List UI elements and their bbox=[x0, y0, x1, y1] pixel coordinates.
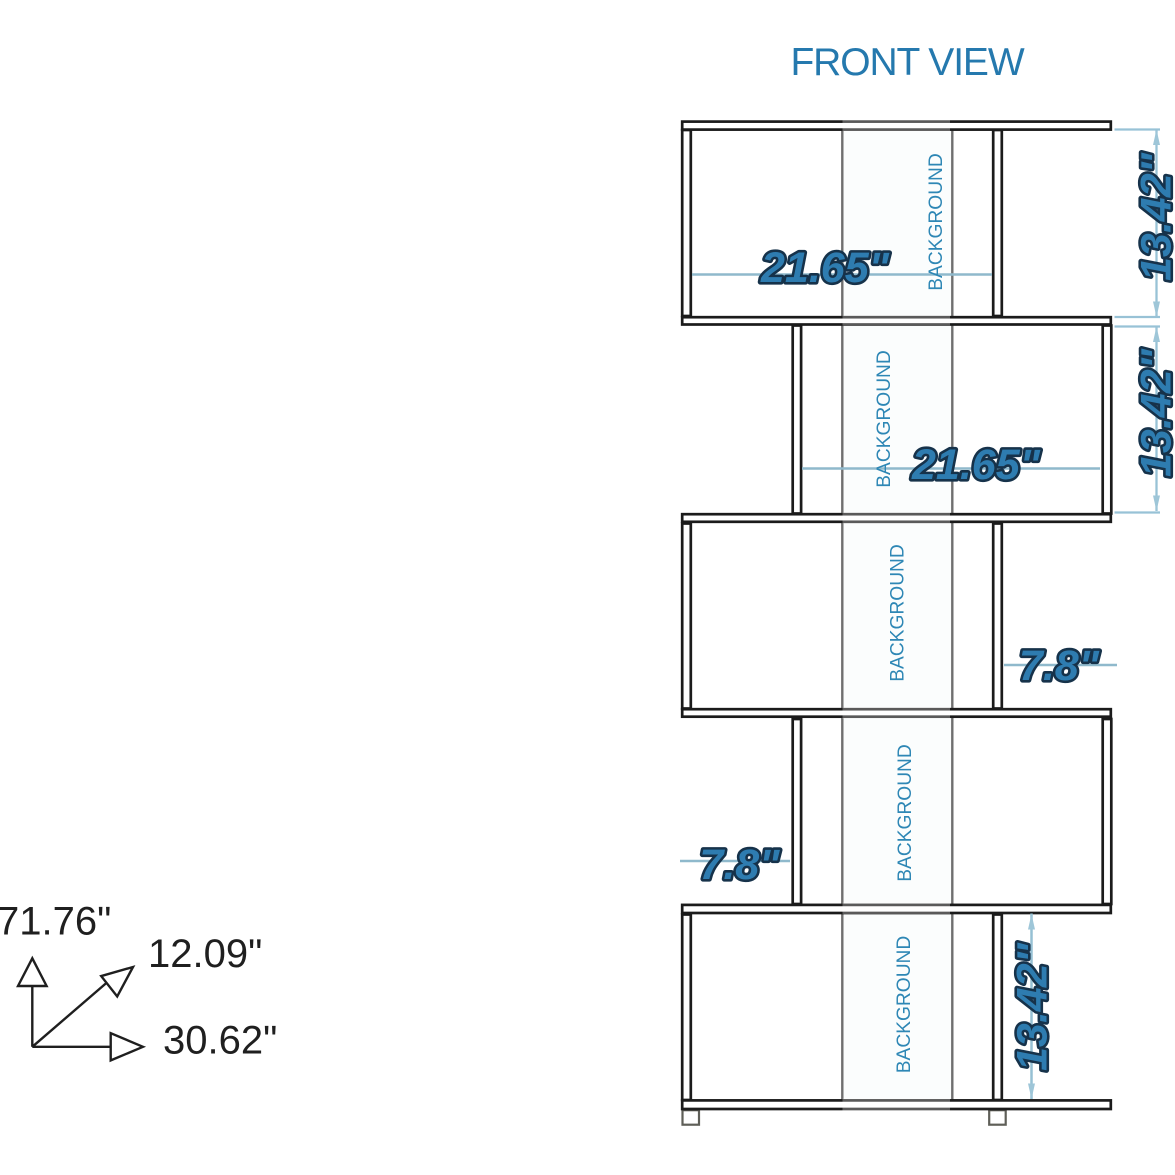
svg-text:7.8": 7.8" bbox=[1019, 642, 1100, 690]
svg-text:12.09": 12.09" bbox=[148, 932, 262, 976]
svg-text:13.42": 13.42" bbox=[1132, 152, 1175, 281]
svg-text:13.42": 13.42" bbox=[1132, 348, 1175, 477]
svg-text:30.62": 30.62" bbox=[163, 1019, 277, 1063]
svg-text:21.65": 21.65" bbox=[760, 244, 890, 292]
svg-text:BACKGROUND: BACKGROUND bbox=[887, 544, 908, 682]
svg-text:13.42": 13.42" bbox=[1008, 942, 1056, 1071]
svg-text:BACKGROUND: BACKGROUND bbox=[894, 936, 915, 1074]
svg-text:7.8": 7.8" bbox=[699, 841, 780, 889]
svg-text:BACKGROUND: BACKGROUND bbox=[895, 744, 916, 882]
svg-text:21.65": 21.65" bbox=[911, 441, 1041, 489]
svg-text:71.76": 71.76" bbox=[0, 900, 111, 944]
svg-text:BACKGROUND: BACKGROUND bbox=[926, 153, 947, 291]
svg-text:FRONT VIEW: FRONT VIEW bbox=[790, 41, 1024, 84]
svg-text:BACKGROUND: BACKGROUND bbox=[874, 350, 895, 488]
